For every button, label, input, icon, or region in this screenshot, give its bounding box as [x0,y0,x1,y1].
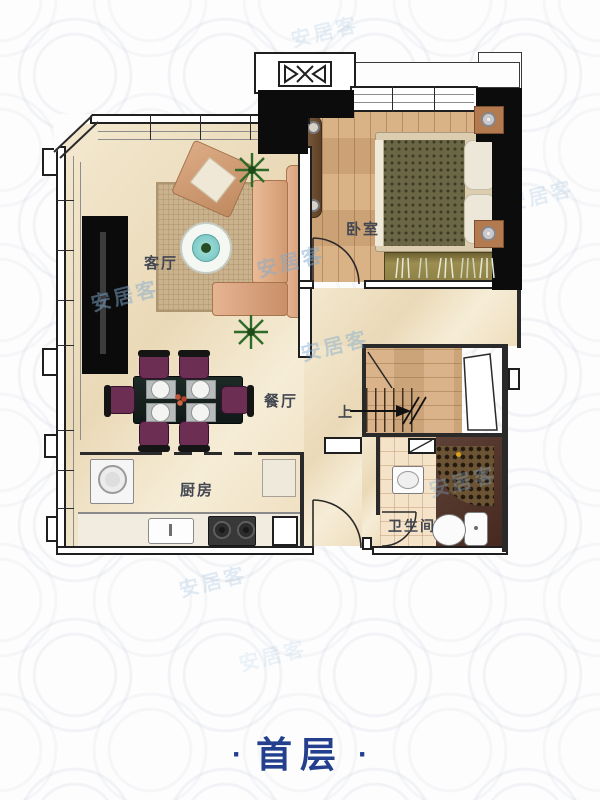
toilet-bowl [432,514,466,546]
window-mullion [56,250,74,251]
window-mullion [250,114,251,140]
window-mullion [434,86,435,112]
stair-flue [464,354,497,430]
wall-stairs-top [362,344,508,348]
window-mullion [56,345,74,346]
dining-chair [221,386,249,414]
window-line-bedroom [354,102,474,103]
wall-pillar [46,516,58,542]
plate [151,403,170,422]
wall-pillar [44,434,58,458]
stair-treads [366,388,420,432]
duct-box [324,437,362,454]
plate [151,380,170,399]
stairs-up-label: 上 [338,402,352,422]
washing-machine-drum [98,465,127,494]
coffee-table-plant-dot [201,243,211,253]
wall-bedroom-bottom [298,280,314,289]
duct-box-flap [408,438,436,454]
kitchen-label: 厨房 [180,479,214,500]
wall-kitchen-top-solid [258,452,304,455]
bedroom-window-band [350,86,478,112]
nightstand-lamp [481,226,496,241]
window-line-left [80,162,81,440]
table-flower [174,393,188,407]
sofa-chaise [212,282,288,316]
window-mullion [56,300,74,301]
window-mullion [56,470,74,471]
window-mullion [200,114,201,140]
bedroom-label: 卧室 [346,218,380,239]
wall-below-bedroom-right [517,286,521,348]
entry-door-stop [362,537,372,550]
wall-bottom-left [56,546,314,555]
dining-chair [139,421,169,447]
plate [191,403,210,422]
dining-chair [107,386,135,414]
floor-plan-image: 安居客 安居客 安居客 安居客 [0,0,600,800]
elevator-shaft [254,52,356,94]
wall-bath-left [376,435,380,515]
wall-bottom-bath [372,546,508,555]
watermark-text: 安居客 [176,558,250,603]
dining-chair [139,353,169,379]
window-mullion [56,508,74,509]
nightstand-lamp [481,112,496,127]
wall-right-nib [508,368,520,390]
wall-black-bedroom-topleft [258,90,308,154]
kitchen-end-cabinet [272,516,298,546]
window-line-left [73,156,74,546]
window-mullion [56,200,74,201]
dining-chair [179,353,209,379]
bed-blanket [383,140,465,246]
bathroom-label: 卫生间 [388,516,436,536]
toilet-flush-dot [474,526,478,530]
wall-block-right [502,344,508,552]
wall-stairs-left [362,344,366,436]
stove-burner [213,521,231,539]
living-room-label: 客厅 [144,252,178,273]
floor-title: ·首层· [0,726,600,778]
dining-chair [179,421,209,447]
wall-kitchen-top-solid [80,452,144,455]
wall-kitchen-right [300,452,304,548]
window-line-bedroom [354,94,474,95]
wall-pillar [42,348,58,376]
window-mullion [150,114,151,140]
title-dot-right: · [358,738,368,771]
dining-room-label: 餐厅 [264,390,298,411]
stove-burner [237,521,255,539]
corridor-outline [342,62,520,88]
plate [191,380,210,399]
window-mullion [56,430,74,431]
fridge [262,459,296,497]
watermark-text: 安居客 [236,632,310,677]
kitchen-faucet [169,524,172,536]
title-text: 首层 [256,734,344,775]
title-dot-left: · [232,738,242,771]
wall-stairs-bath-divider [362,433,508,437]
bathroom-sink-basin [397,471,419,489]
wall-pillar [42,148,58,176]
wall-kitchen-opening-dashed [144,452,258,455]
watermark-text: 安居客 [288,8,362,53]
wardrobe [384,252,502,283]
window-mullion [392,86,393,112]
shower-drain-dot [456,452,461,457]
